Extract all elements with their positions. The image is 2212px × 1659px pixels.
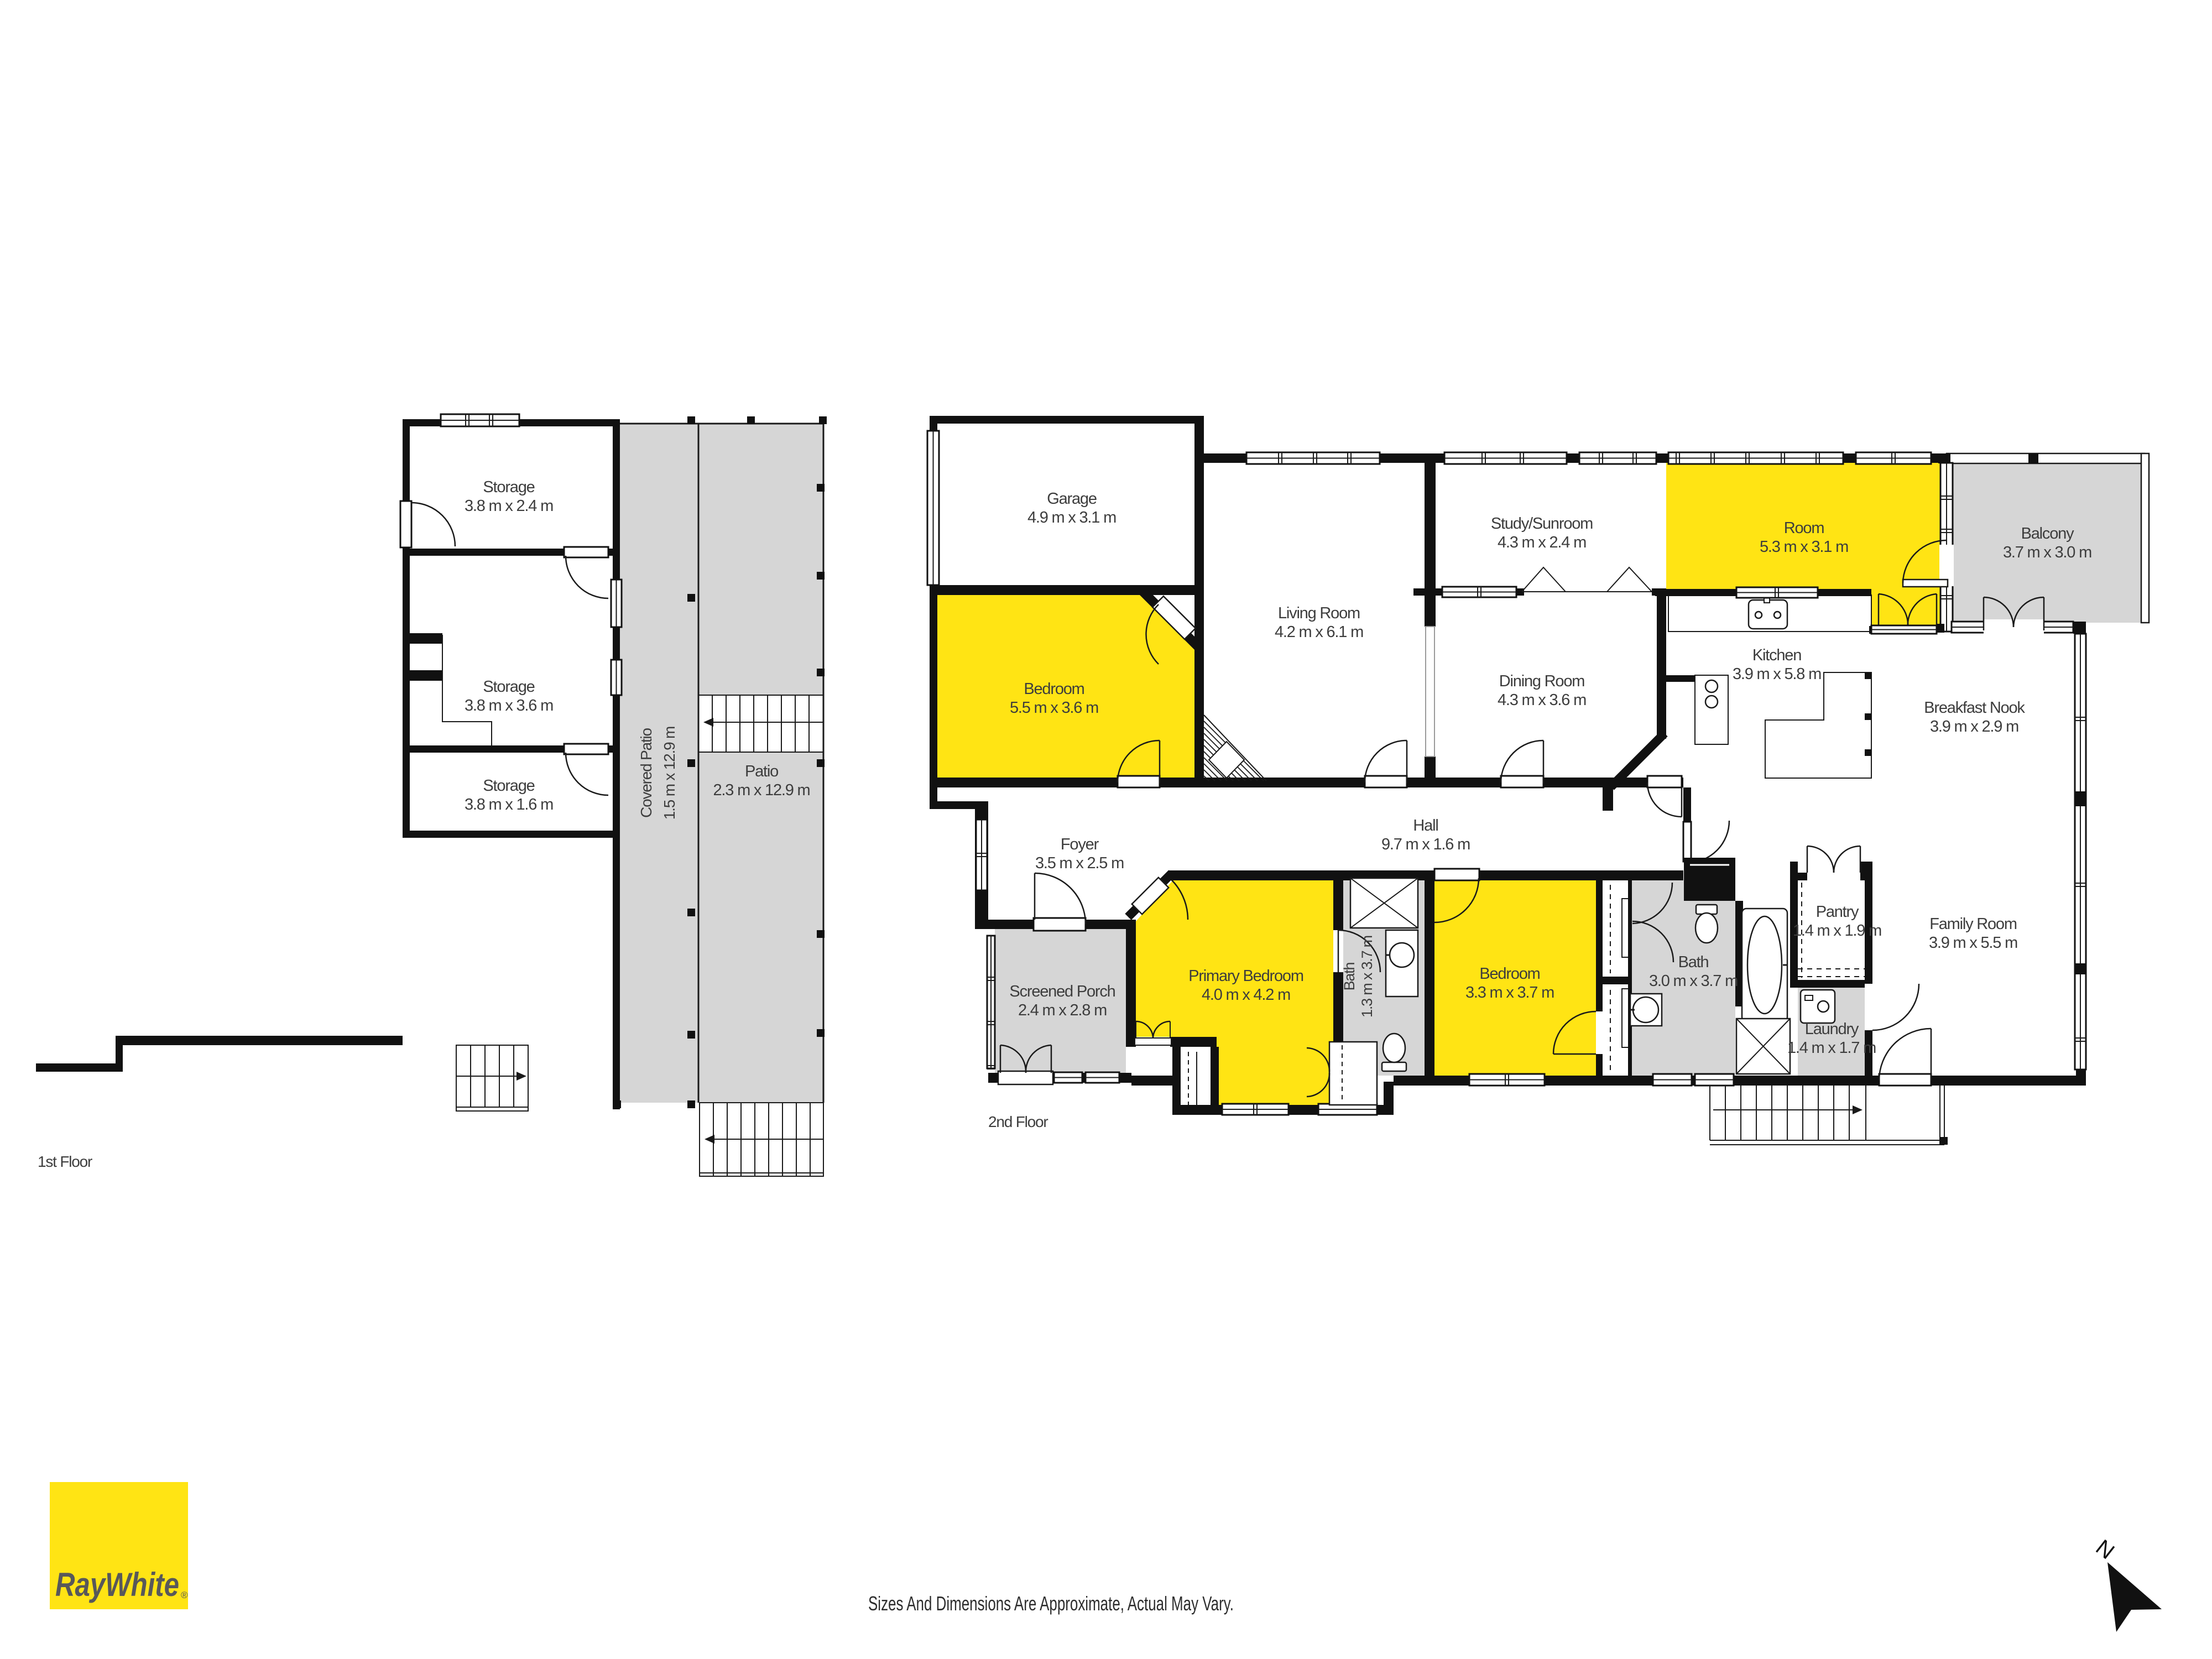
- svg-text:Sizes And Dimensions Are Appro: Sizes And Dimensions Are Approximate, Ac…: [868, 1592, 1234, 1615]
- svg-text:2nd Floor: 2nd Floor: [988, 1113, 1048, 1130]
- svg-text:5.3 m x 3.1 m: 5.3 m x 3.1 m: [1760, 538, 1848, 556]
- svg-text:Pantry: Pantry: [1816, 903, 1859, 921]
- svg-text:Bath: Bath: [1678, 953, 1709, 971]
- svg-text:Screened Porch: Screened Porch: [1009, 983, 1115, 1000]
- svg-text:Bath: Bath: [1341, 962, 1358, 990]
- svg-text:3.5 m x 2.5 m: 3.5 m x 2.5 m: [1035, 854, 1124, 872]
- svg-text:Bedroom: Bedroom: [1024, 680, 1084, 698]
- svg-text:1.4 m x 1.7 m: 1.4 m x 1.7 m: [1787, 1039, 1876, 1057]
- svg-text:Storage: Storage: [483, 777, 534, 795]
- svg-text:Patio: Patio: [745, 763, 778, 780]
- svg-text:Kitchen: Kitchen: [1752, 646, 1801, 664]
- svg-text:3.9 m x 5.5 m: 3.9 m x 5.5 m: [1929, 934, 2017, 952]
- svg-text:Dining Room: Dining Room: [1499, 672, 1584, 690]
- svg-text:2.4 m x 2.8 m: 2.4 m x 2.8 m: [1018, 1001, 1107, 1019]
- svg-text:3.0 m x 3.7 m: 3.0 m x 3.7 m: [1649, 972, 1738, 990]
- svg-text:Balcony: Balcony: [2021, 525, 2074, 542]
- svg-text:3.8 m x 3.6 m: 3.8 m x 3.6 m: [465, 697, 553, 714]
- svg-text:9.7 m x 1.6 m: 9.7 m x 1.6 m: [1381, 836, 1470, 853]
- svg-text:Room: Room: [1784, 519, 1824, 537]
- svg-text:3.3 m x 3.7 m: 3.3 m x 3.7 m: [1465, 984, 1554, 1001]
- svg-text:3.8 m x 2.4 m: 3.8 m x 2.4 m: [465, 497, 553, 515]
- svg-text:Foyer: Foyer: [1061, 836, 1099, 853]
- svg-text:1.4 m x 1.9 m: 1.4 m x 1.9 m: [1793, 922, 1881, 940]
- svg-text:Laundry: Laundry: [1805, 1020, 1859, 1038]
- svg-text:4.2 m x 6.1 m: 4.2 m x 6.1 m: [1275, 623, 1363, 641]
- svg-text:Study/Sunroom: Study/Sunroom: [1491, 515, 1593, 533]
- svg-text:3.9 m x 2.9 m: 3.9 m x 2.9 m: [1930, 718, 2018, 735]
- svg-text:Storage: Storage: [483, 478, 534, 496]
- svg-text:3.8 m x 1.6 m: 3.8 m x 1.6 m: [465, 796, 553, 813]
- svg-text:Primary Bedroom: Primary Bedroom: [1188, 967, 1303, 985]
- svg-text:Storage: Storage: [483, 678, 534, 696]
- svg-text:1.5 m x 12.9 m: 1.5 m x 12.9 m: [661, 727, 678, 820]
- svg-text:1st Floor: 1st Floor: [38, 1153, 92, 1170]
- svg-text:Family Room: Family Room: [1929, 915, 2017, 933]
- svg-text:Bedroom: Bedroom: [1479, 965, 1540, 983]
- svg-text:Hall: Hall: [1413, 817, 1438, 834]
- svg-text:5.5 m x 3.6 m: 5.5 m x 3.6 m: [1010, 699, 1098, 717]
- svg-text:4.3 m x 2.4 m: 4.3 m x 2.4 m: [1498, 534, 1586, 551]
- svg-text:3.9 m x 5.8 m: 3.9 m x 5.8 m: [1733, 665, 1821, 683]
- svg-text:®: ®: [181, 1590, 188, 1600]
- svg-text:Living Room: Living Room: [1278, 604, 1360, 622]
- svg-text:Covered Patio: Covered Patio: [638, 728, 655, 817]
- svg-text:Breakfast Nook: Breakfast Nook: [1924, 699, 2025, 717]
- svg-text:3.7 m x 3.0 m: 3.7 m x 3.0 m: [2003, 544, 2091, 561]
- svg-text:RayWhite: RayWhite: [55, 1566, 179, 1603]
- svg-text:4.3 m x 3.6 m: 4.3 m x 3.6 m: [1498, 691, 1586, 709]
- svg-text:Garage: Garage: [1047, 490, 1097, 508]
- svg-text:4.0 m x 4.2 m: 4.0 m x 4.2 m: [1202, 986, 1290, 1004]
- svg-text:2.3 m x 12.9 m: 2.3 m x 12.9 m: [713, 781, 810, 799]
- svg-text:4.9 m x 3.1 m: 4.9 m x 3.1 m: [1027, 509, 1116, 526]
- svg-text:1.3 m x 3.7 m: 1.3 m x 3.7 m: [1359, 936, 1375, 1018]
